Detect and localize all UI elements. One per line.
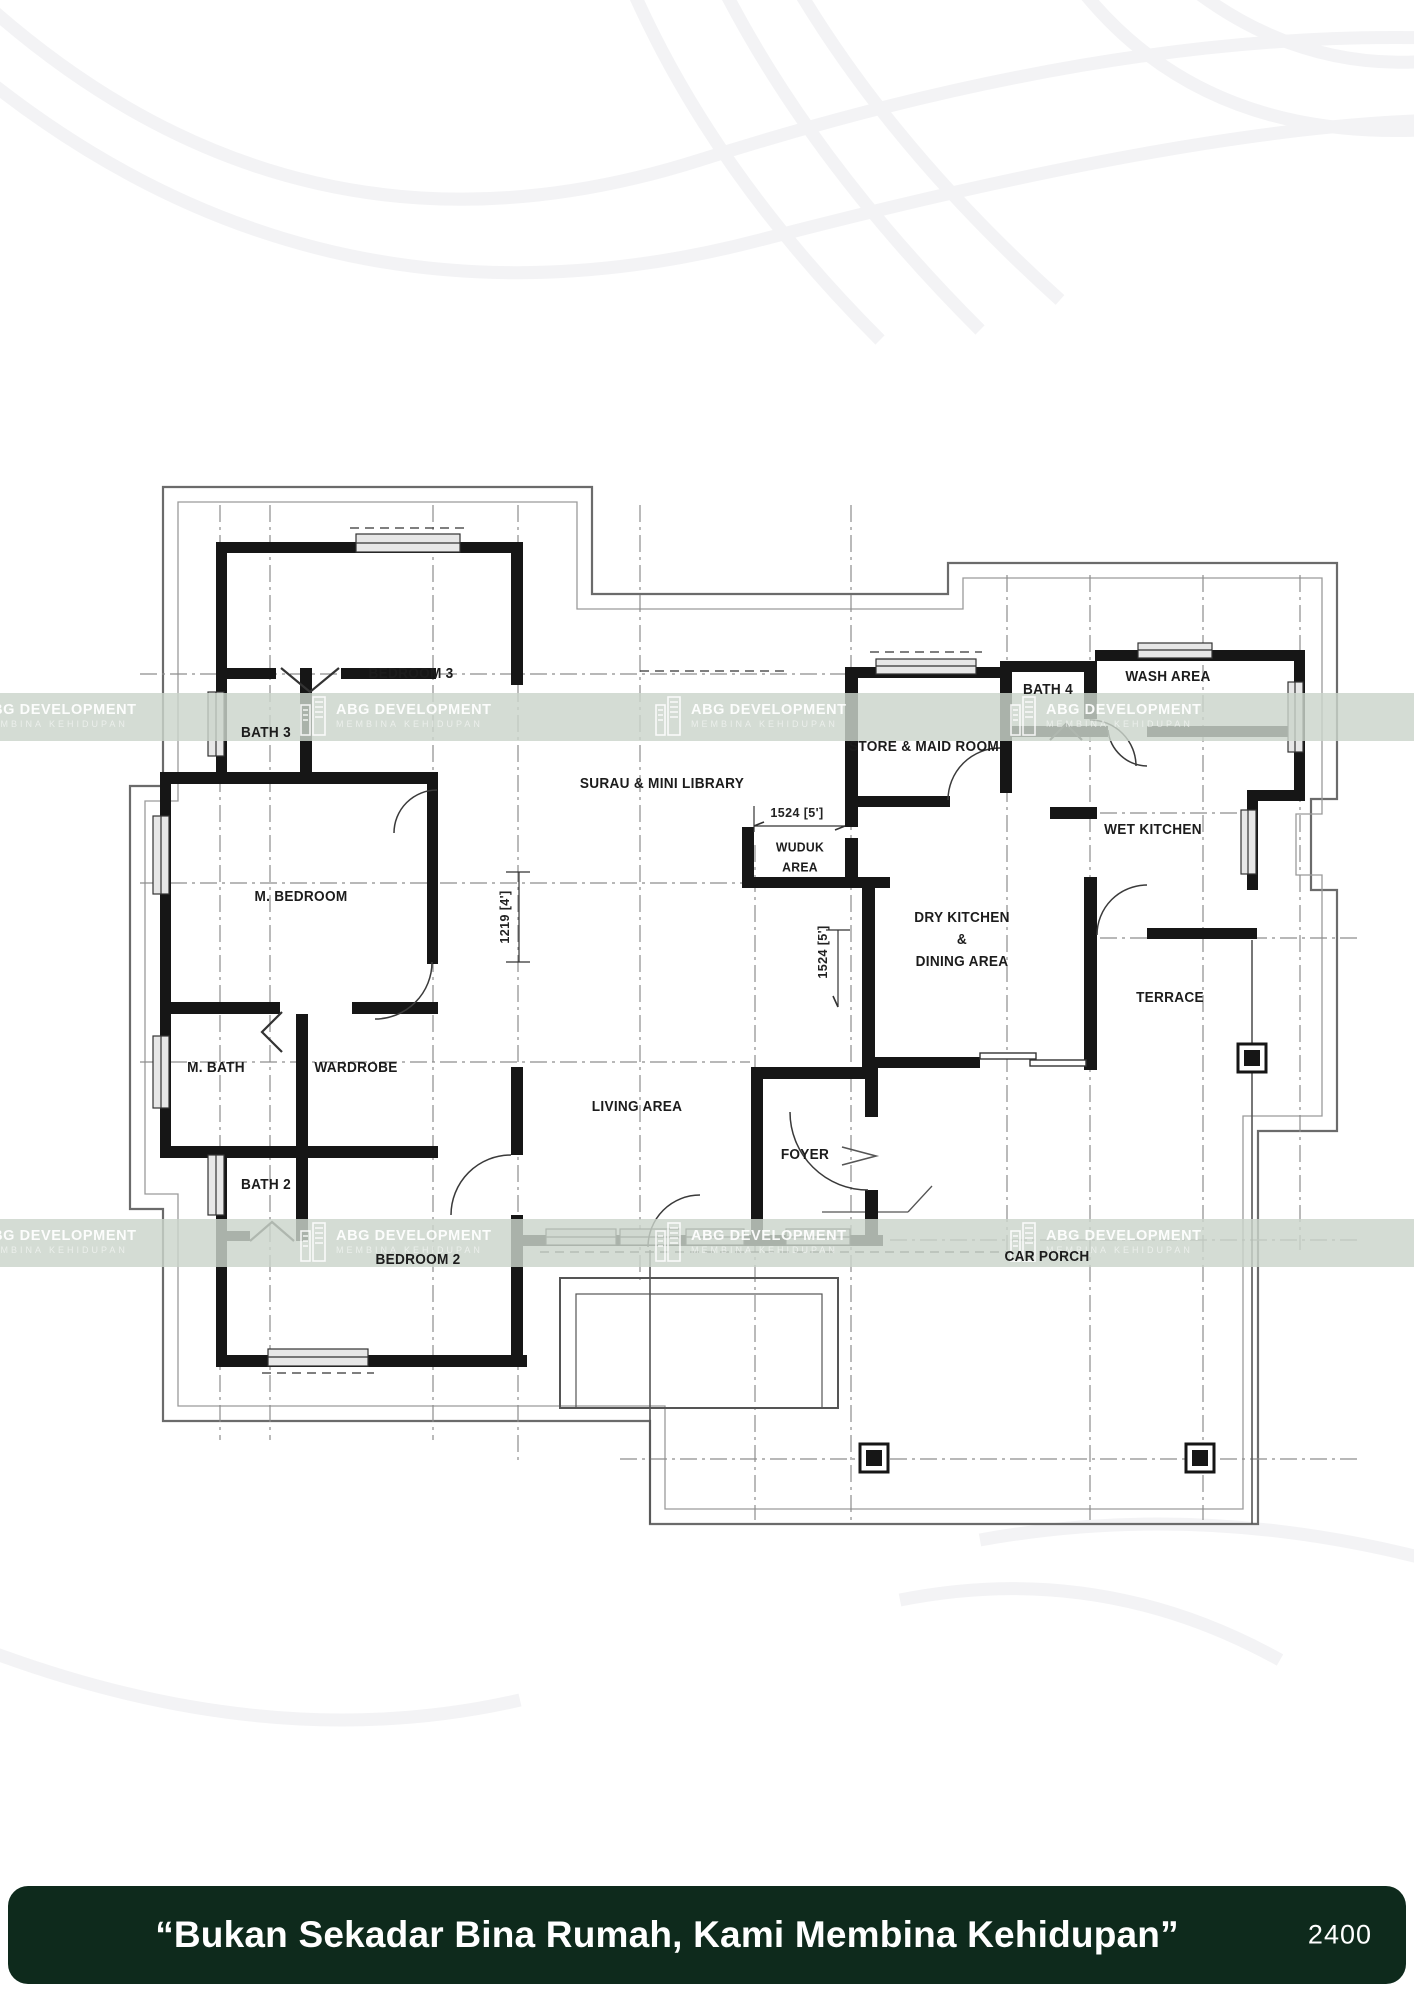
room-label-wuduk-line2: AREA: [782, 860, 818, 875]
room-label-dry-kitchen-line3: DINING AREA: [916, 954, 1009, 970]
room-label-wardrobe: WARDROBE: [314, 1060, 397, 1076]
room-label-wuduk-line1: WUDUK: [776, 840, 824, 855]
room-label-bath2: BATH 2: [241, 1177, 291, 1193]
room-label-surau: SURAU & MINI LIBRARY: [580, 776, 744, 792]
footer-slogan: “Bukan Sekadar Bina Rumah, Kami Membina …: [155, 1914, 1179, 1956]
room-label-dry-kitchen-line2: &: [957, 932, 967, 948]
room-label-wash: WASH AREA: [1125, 669, 1210, 685]
room-label-foyer: FOYER: [781, 1147, 829, 1163]
room-label-bedroom2: BEDROOM 2: [375, 1252, 460, 1268]
dimension-wuduk-width: 1524 [5']: [770, 806, 823, 820]
room-label-bath3: BATH 3: [241, 725, 291, 741]
room-label-bedroom3: BEDROOM 3: [368, 666, 453, 682]
dimension-foyer-corridor: 1524 [5']: [816, 925, 830, 978]
room-labels: BEDROOM 3 BATH 3 SURAU & MINI LIBRARY WU…: [0, 0, 1414, 2000]
room-label-car-porch: CAR PORCH: [1004, 1249, 1089, 1265]
dimension-hallway: 1219 [4']: [498, 890, 512, 943]
room-label-m-bath: M. BATH: [187, 1060, 245, 1076]
room-label-m-bedroom: M. BEDROOM: [255, 889, 348, 905]
room-label-bath4: BATH 4: [1023, 682, 1073, 698]
room-label-dry-kitchen-line1: DRY KITCHEN: [914, 910, 1009, 926]
room-label-terrace: TERRACE: [1136, 990, 1204, 1006]
floor-plan-poster: ABG DEVELOPMENTMEMBINA KEHIDUPAN ABG DEV…: [0, 0, 1414, 2000]
room-label-living: LIVING AREA: [592, 1099, 682, 1115]
room-label-wet-kitchen: WET KITCHEN: [1104, 822, 1202, 838]
plan-code: 2400: [1308, 1920, 1372, 1951]
room-label-store: STORE & MAID ROOM: [849, 739, 999, 755]
footer-bar: “Bukan Sekadar Bina Rumah, Kami Membina …: [8, 1886, 1406, 1984]
